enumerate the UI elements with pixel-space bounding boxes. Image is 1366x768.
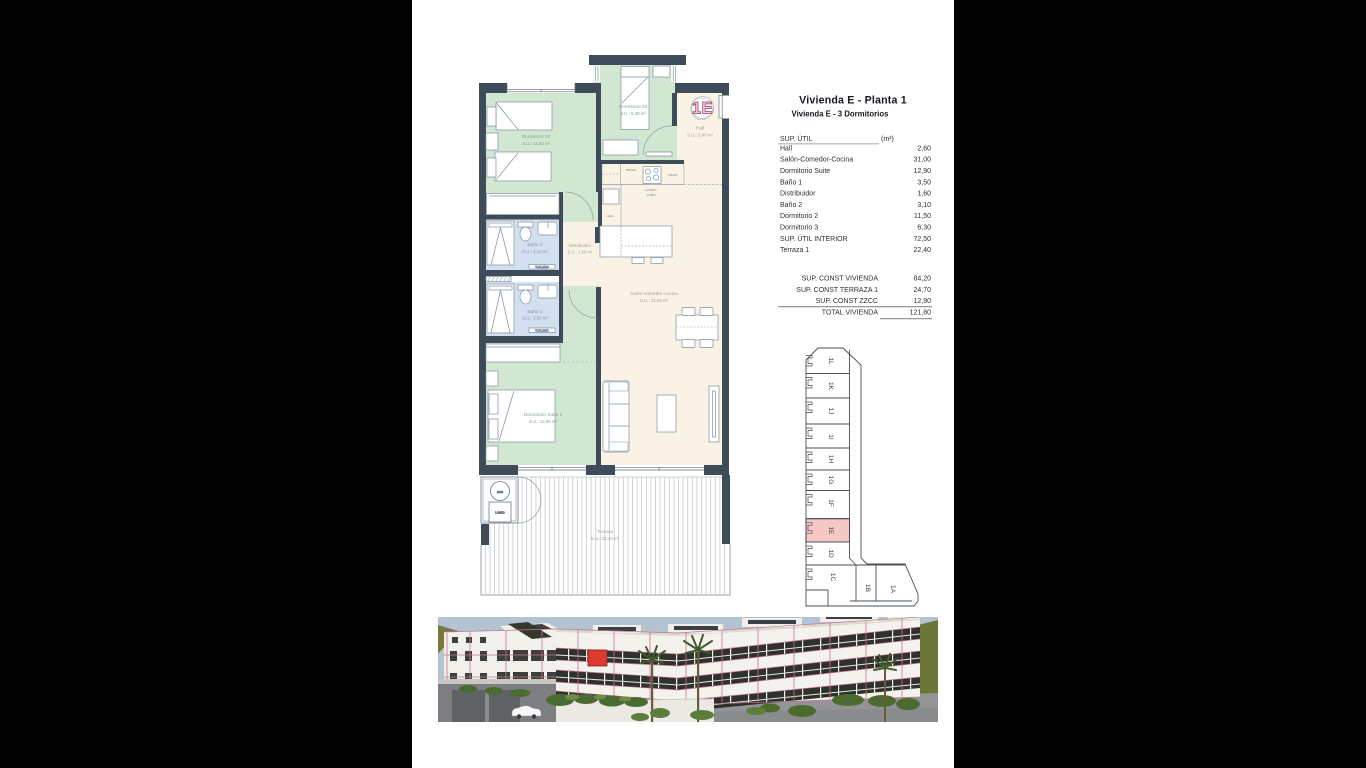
svg-text:12,90: 12,90 [913, 168, 931, 175]
svg-text:HORNO: HORNO [645, 188, 657, 192]
svg-text:3,10: 3,10 [917, 202, 931, 209]
svg-text:SUP. CONST TERRAZA 1: SUP. CONST TERRAZA 1 [796, 287, 878, 294]
svg-text:S.U.: 1,60 m²: S.U.: 1,60 m² [568, 250, 593, 255]
svg-text:Vivienda E - Planta 1: Vivienda E - Planta 1 [799, 95, 907, 107]
svg-text:1L: 1L [827, 357, 834, 365]
svg-text:1C: 1C [829, 573, 836, 582]
svg-text:1D: 1D [827, 549, 834, 558]
svg-text:11,50: 11,50 [914, 213, 931, 220]
svg-text:S.U.: 3,50 m²: S.U.: 3,50 m² [522, 316, 548, 321]
svg-text:TOTAL VIVIENDA: TOTAL VIVIENDA [822, 310, 879, 317]
svg-text:S.U.: 3,10 m²: S.U.: 3,10 m² [522, 249, 548, 254]
svg-text:72,50: 72,50 [913, 236, 931, 243]
svg-text:121,80: 121,80 [910, 310, 932, 317]
svg-text:Hall: Hall [696, 126, 704, 132]
svg-text:22,40: 22,40 [913, 247, 931, 254]
svg-text:FRIGO: FRIGO [668, 173, 678, 177]
svg-text:S.U.: 22,40 m²: S.U.: 22,40 m² [591, 536, 620, 541]
svg-text:VITRO: VITRO [646, 193, 656, 197]
svg-text:S.U.: 2,40 m²: S.U.: 2,40 m² [687, 133, 713, 138]
svg-text:1B: 1B [864, 584, 871, 592]
svg-text:1I: 1I [827, 434, 834, 440]
svg-text:S.U.: 11,50 m²: S.U.: 11,50 m² [522, 141, 551, 146]
svg-text:Distribuidor: Distribuidor [569, 243, 592, 248]
svg-text:ACS: ACS [497, 490, 503, 494]
svg-text:Baño 1: Baño 1 [780, 179, 802, 186]
svg-text:Dormitorio 02: Dormitorio 02 [522, 134, 551, 140]
svg-text:Dormitorio 3: Dormitorio 3 [780, 225, 818, 232]
svg-text:Terraza: Terraza [597, 529, 613, 535]
svg-text:MICRO: MICRO [626, 168, 637, 172]
svg-text:24,70: 24,70 [913, 287, 931, 294]
svg-text:LAVA: LAVA [606, 214, 613, 218]
svg-text:Dormitorio 03: Dormitorio 03 [619, 104, 648, 110]
svg-text:6,30: 6,30 [917, 225, 931, 232]
svg-text:3,50: 3,50 [917, 179, 931, 186]
svg-text:Salón-comedor-cocina: Salón-comedor-cocina [630, 291, 678, 297]
svg-text:Dormitorio 2: Dormitorio 2 [780, 213, 818, 220]
svg-text:1G: 1G [827, 476, 834, 485]
svg-text:S.U.: 12,90 m²: S.U.: 12,90 m² [529, 419, 558, 424]
svg-text:Terraza 1: Terraza 1 [780, 247, 809, 254]
svg-text:S.U.: 31,00 m²: S.U.: 31,00 m² [640, 298, 669, 303]
svg-text:Baño 1: Baño 1 [527, 309, 543, 315]
svg-text:31,00: 31,00 [913, 157, 931, 164]
svg-text:1E: 1E [827, 527, 834, 536]
svg-text:84,20: 84,20 [913, 275, 931, 282]
svg-text:TOALLERO: TOALLERO [535, 265, 549, 269]
svg-text:1H: 1H [827, 455, 834, 464]
svg-text:Distribuidor: Distribuidor [780, 191, 816, 198]
svg-text:Salón-Comedor-Cocina: Salón-Comedor-Cocina [780, 157, 853, 164]
svg-text:TOALLERO: TOALLERO [535, 329, 549, 333]
svg-text:1E: 1E [692, 100, 713, 118]
svg-text:SUP. CONST ZZCC: SUP. CONST ZZCC [816, 298, 878, 305]
svg-text:1K: 1K [827, 382, 834, 391]
svg-text:SUP. ÚTIL: SUP. ÚTIL [780, 134, 813, 143]
svg-text:Vivienda E - 3 Dormitorios: Vivienda E - 3 Dormitorios [792, 110, 890, 119]
svg-text:SUP. ÚTIL INTERIOR: SUP. ÚTIL INTERIOR [780, 234, 848, 243]
svg-text:SUP. CONST VIVIENDA: SUP. CONST VIVIENDA [802, 275, 879, 282]
svg-text:Dormitorio Suite: Dormitorio Suite [780, 168, 830, 175]
svg-text:(m²): (m²) [881, 136, 894, 143]
svg-text:1,60: 1,60 [917, 191, 931, 198]
svg-text:1A: 1A [889, 585, 896, 594]
svg-text:Baño 2: Baño 2 [780, 202, 802, 209]
svg-text:1F: 1F [827, 499, 834, 507]
svg-text:2,60: 2,60 [917, 145, 931, 152]
svg-text:LAVAD: LAVAD [495, 511, 505, 515]
svg-text:S.U.: 6,00 m²: S.U.: 6,00 m² [620, 111, 646, 116]
svg-text:Dormitorio Suite 1: Dormitorio Suite 1 [524, 412, 563, 418]
svg-text:Baño 2: Baño 2 [527, 242, 543, 248]
svg-text:12,90: 12,90 [913, 298, 931, 305]
svg-text:Hall: Hall [780, 145, 793, 152]
svg-text:1J: 1J [827, 408, 834, 415]
